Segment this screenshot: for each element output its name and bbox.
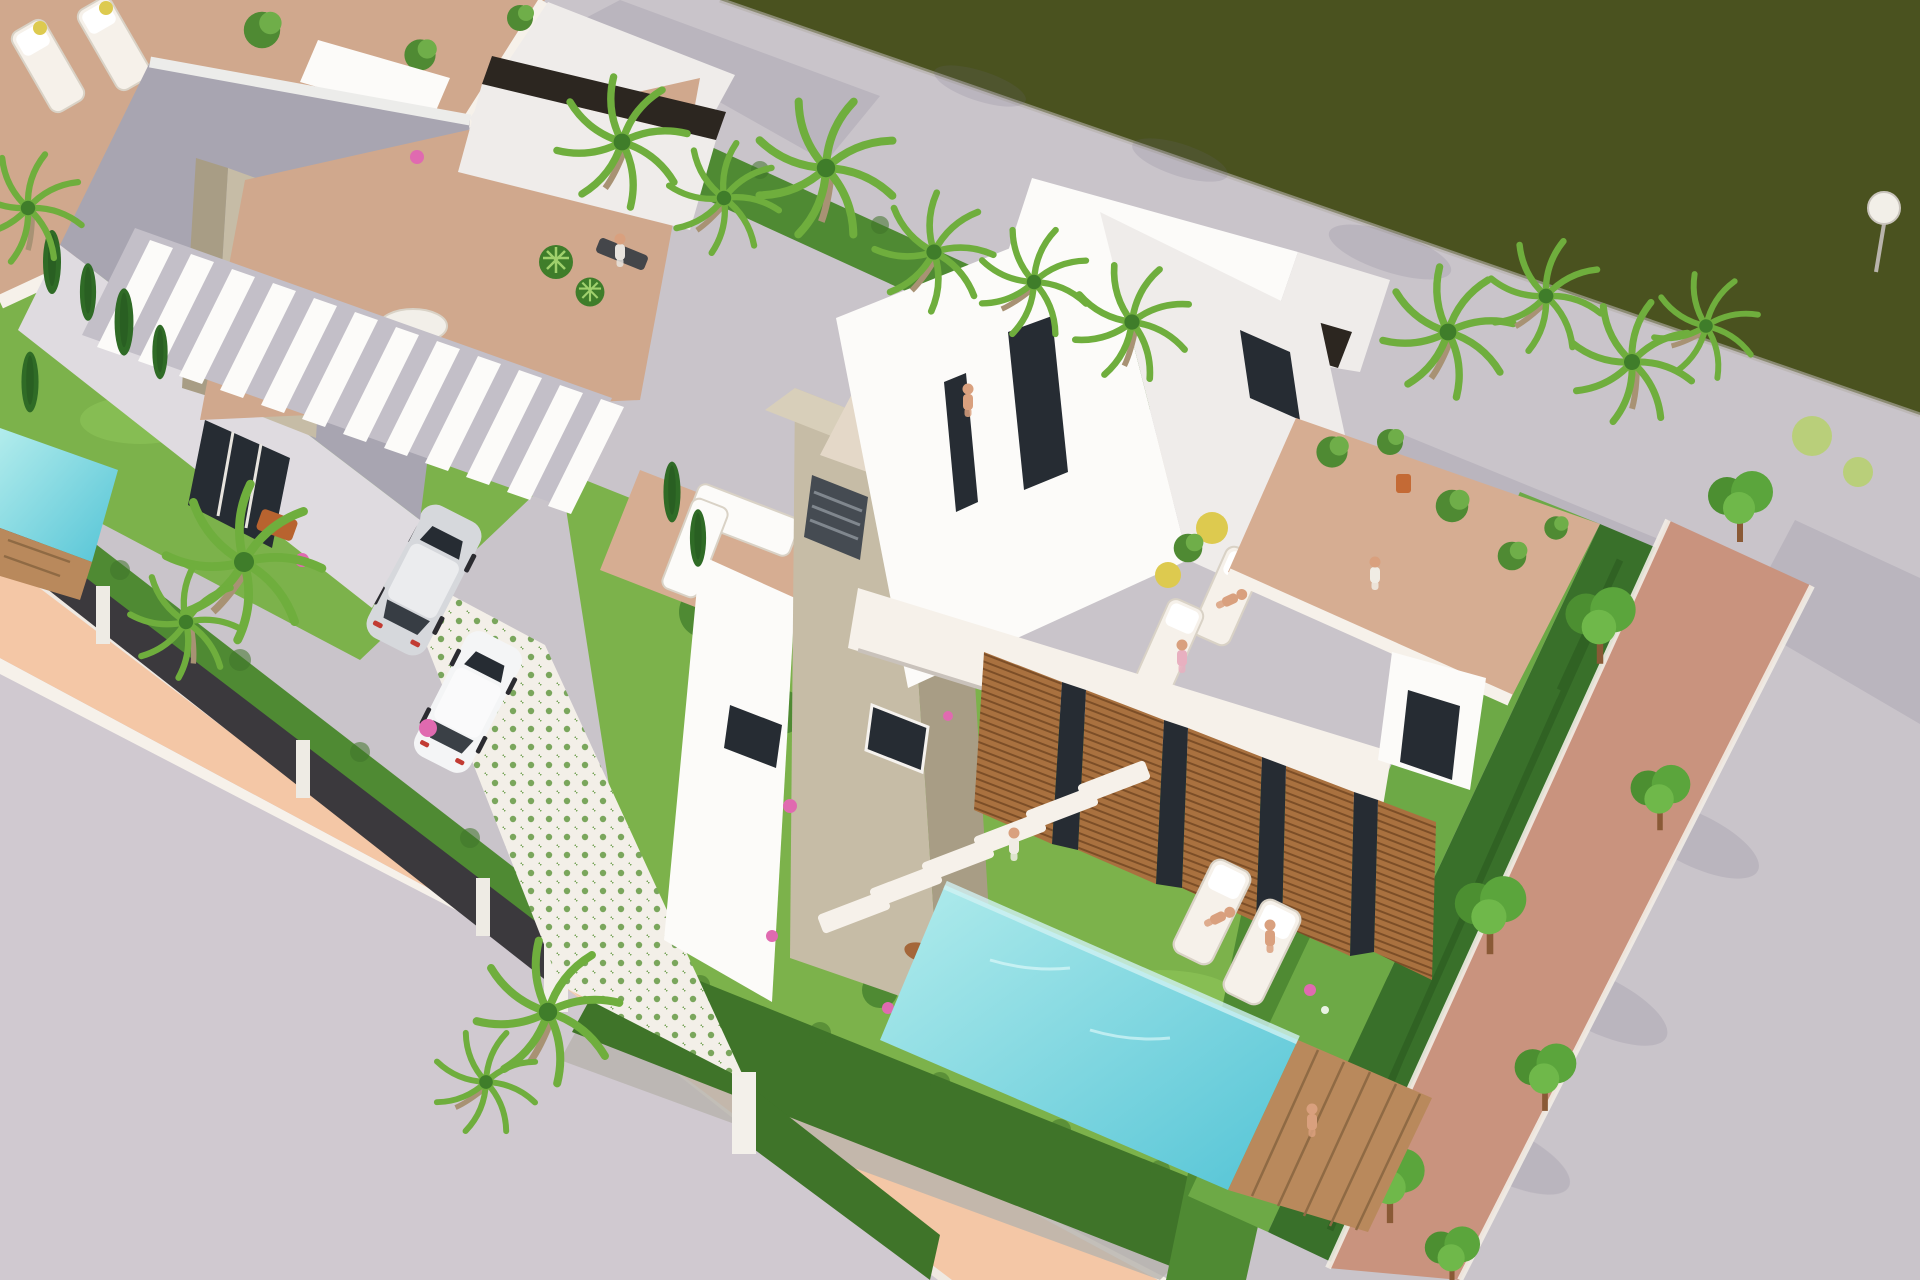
gate-pillar	[732, 1072, 756, 1154]
fence-post	[96, 586, 110, 644]
villa-development-render	[0, 0, 1920, 1280]
orange-pot	[1396, 474, 1411, 493]
cypress	[152, 325, 167, 379]
fence-post	[476, 878, 490, 936]
parasol-ball	[1155, 562, 1181, 588]
cypress	[80, 263, 96, 321]
cypress	[663, 462, 680, 523]
fence-post	[296, 740, 310, 798]
ball-shrub	[1792, 416, 1832, 456]
big-leaf-plant	[576, 278, 605, 307]
cypress	[115, 288, 134, 355]
ball-shrub	[1843, 457, 1873, 487]
cypress	[690, 509, 706, 567]
big-leaf-plant	[539, 245, 573, 279]
cypress	[21, 352, 38, 413]
